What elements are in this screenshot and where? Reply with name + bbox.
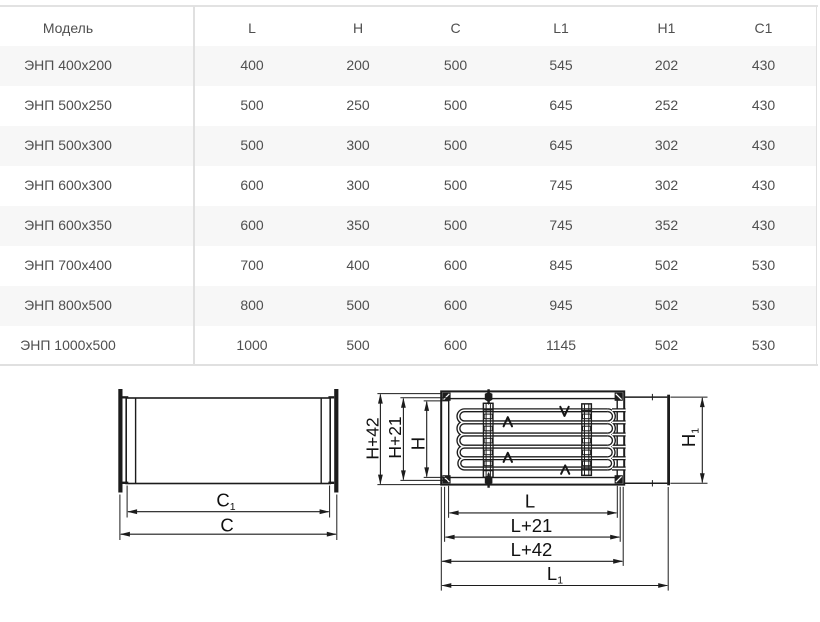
svg-text:L+21: L+21 — [511, 515, 553, 536]
svg-text:H+21: H+21 — [385, 416, 405, 458]
svg-text:C1: C1 — [216, 490, 235, 514]
svg-text:C: C — [220, 515, 233, 536]
svg-text:L: L — [525, 491, 535, 512]
svg-text:H1: H1 — [678, 428, 702, 447]
svg-text:H+42: H+42 — [363, 417, 383, 459]
svg-text:H: H — [408, 437, 429, 450]
svg-text:L1: L1 — [547, 563, 563, 587]
svg-text:L+42: L+42 — [511, 539, 553, 560]
